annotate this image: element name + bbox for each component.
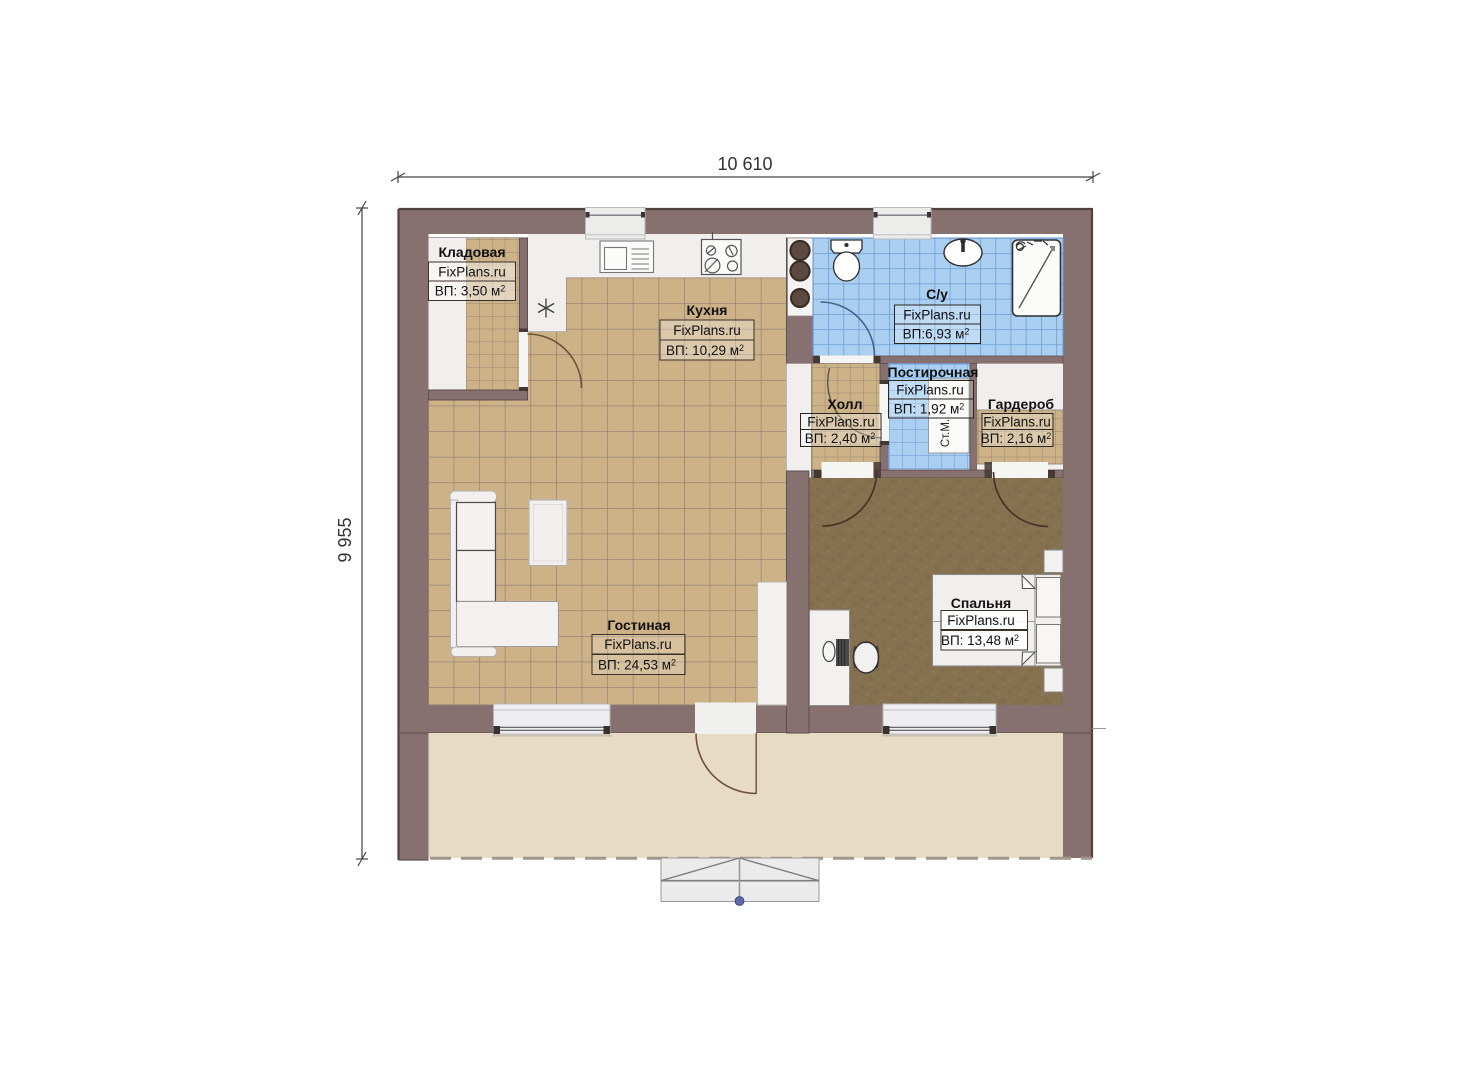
svg-text:ВП: 13,48 м2: ВП: 13,48 м2 (941, 633, 1019, 648)
svg-text:FixPlans.ru: FixPlans.ru (673, 323, 741, 338)
svg-text:ВП: 2,16 м2: ВП: 2,16 м2 (981, 431, 1052, 446)
svg-text:FixPlans.ru: FixPlans.ru (947, 613, 1015, 628)
svg-text:Постирочная: Постирочная (888, 364, 979, 380)
svg-text:Кухня: Кухня (687, 302, 728, 318)
svg-text:ВП: 3,50 м2: ВП: 3,50 м2 (435, 284, 506, 299)
svg-text:ВП: 2,40 м2: ВП: 2,40 м2 (805, 431, 876, 446)
svg-text:10 610: 10 610 (717, 154, 772, 174)
svg-text:ВП: 10,29 м2: ВП: 10,29 м2 (666, 343, 744, 358)
svg-text:Ст.М.: Ст.М. (940, 419, 952, 447)
svg-text:Кладовая: Кладовая (438, 244, 505, 260)
svg-text:ВП: 1,92 м2: ВП: 1,92 м2 (894, 402, 965, 417)
svg-text:Холл: Холл (827, 396, 862, 412)
svg-text:FixPlans.ru: FixPlans.ru (604, 637, 672, 652)
svg-text:9 955: 9 955 (335, 517, 355, 562)
svg-text:FixPlans.ru: FixPlans.ru (896, 383, 964, 398)
svg-text:Спальня: Спальня (951, 595, 1011, 611)
svg-text:FixPlans.ru: FixPlans.ru (903, 308, 971, 323)
svg-text:Гостиная: Гостиная (607, 617, 670, 633)
svg-text:С/у: С/у (926, 286, 948, 302)
svg-text:ВП:6,93 м2: ВП:6,93 м2 (903, 327, 970, 342)
svg-text:ВП: 24,53 м2: ВП: 24,53 м2 (598, 658, 676, 673)
svg-text:Гардероб: Гардероб (988, 396, 1055, 412)
svg-text:FixPlans.ru: FixPlans.ru (438, 265, 506, 280)
svg-text:FixPlans.ru: FixPlans.ru (983, 415, 1051, 430)
svg-text:FixPlans.ru: FixPlans.ru (807, 415, 875, 430)
